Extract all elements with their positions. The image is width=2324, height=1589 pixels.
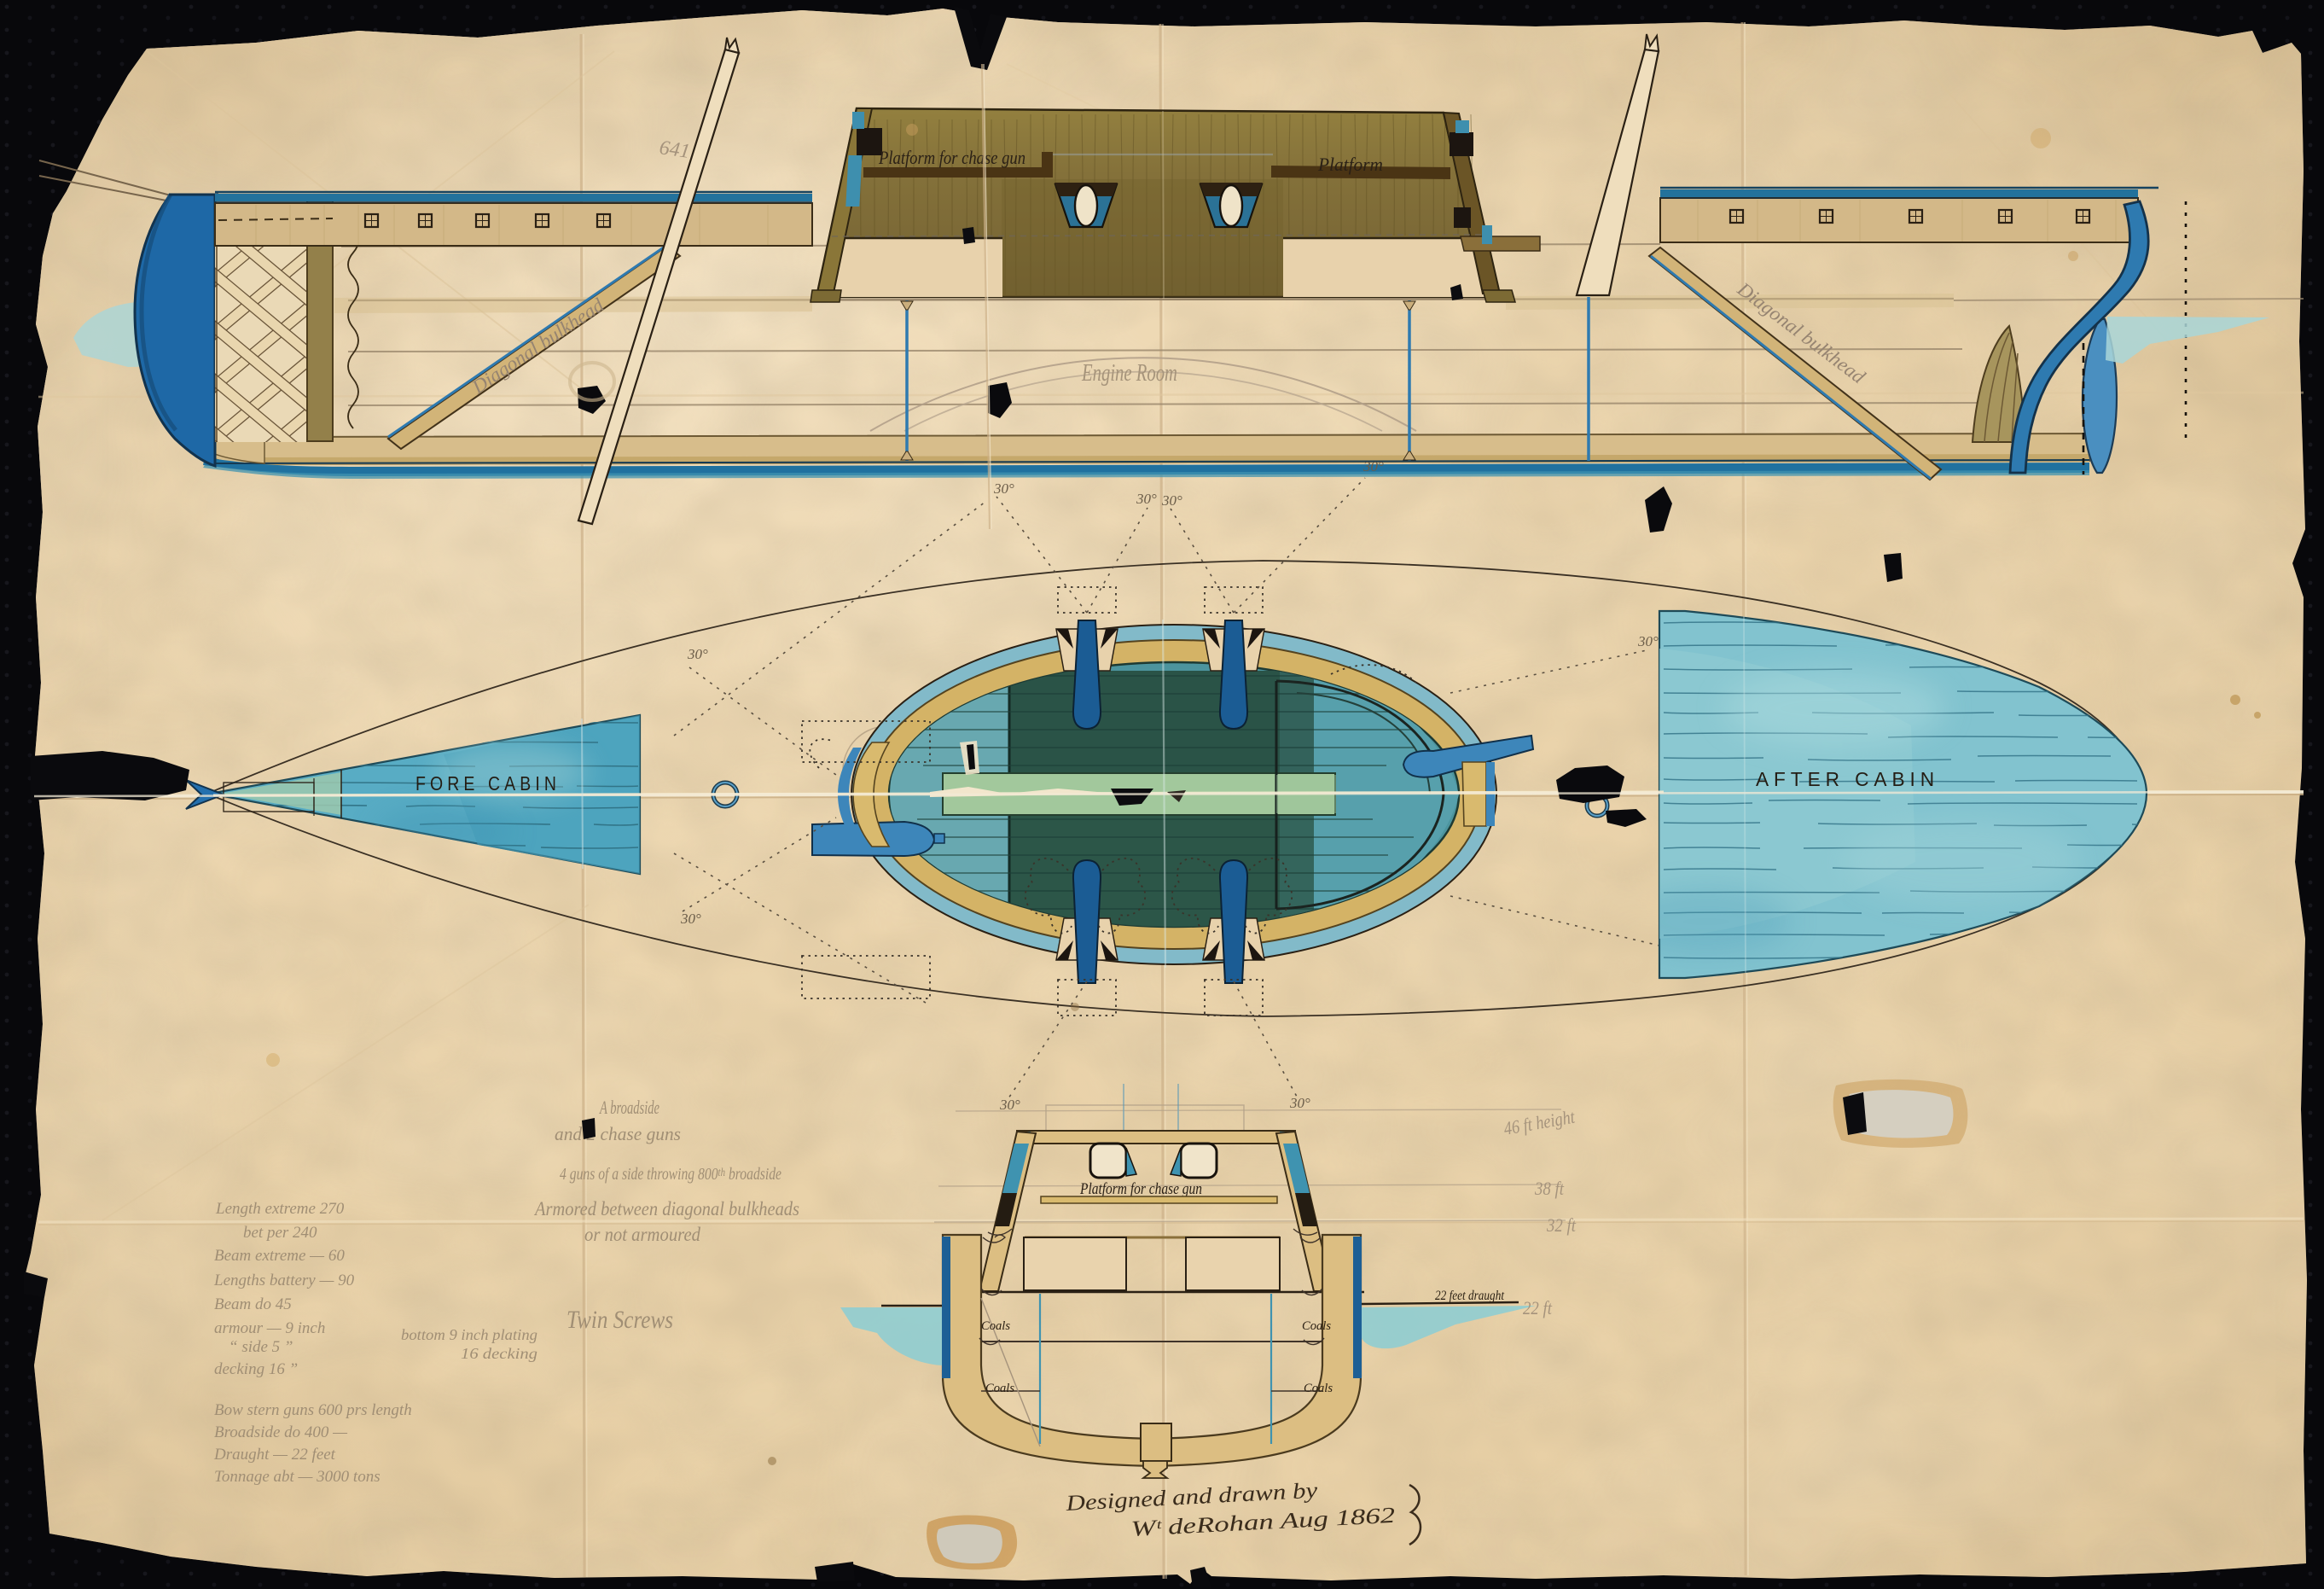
svg-text:Coals: Coals [1302,1319,1331,1333]
svg-text:30°: 30° [993,480,1014,497]
svg-text:4 guns of a side throwing 800t: 4 guns of a side throwing 800th broadsid… [560,1165,781,1184]
svg-text:30°: 30° [1637,633,1659,649]
svg-text:30°: 30° [680,911,701,927]
svg-text:30°: 30° [1362,458,1384,474]
svg-text:16 decking: 16 decking [461,1345,537,1362]
svg-text:Broadside do 400 —: Broadside do 400 — [214,1423,347,1441]
svg-text:Draught — 22 feet: Draught — 22 feet [213,1446,336,1464]
svg-text:AFTER CABIN: AFTER CABIN [1756,768,1939,790]
svg-text:38 ft: 38 ft [1534,1178,1565,1199]
svg-text:Coals: Coals [985,1382,1014,1395]
svg-text:Beam do 45: Beam do 45 [214,1295,292,1313]
svg-text:22 ft: 22 ft [1523,1297,1553,1318]
svg-text:armour — 9 inch: armour — 9 inch [214,1319,325,1337]
svg-text:Twin Screws: Twin Screws [566,1306,673,1334]
svg-text:Beam extreme — 60: Beam extreme — 60 [214,1247,345,1265]
svg-text:30°: 30° [1161,492,1182,509]
svg-text:Engine Room: Engine Room [1081,360,1177,387]
svg-text:FORE CABIN: FORE CABIN [415,772,561,794]
svg-text:32 ft: 32 ft [1546,1214,1577,1236]
svg-text:641: 641 [658,137,691,163]
svg-text:A broadside: A broadside [599,1097,659,1118]
svg-text:22 feet draught: 22 feet draught [1435,1289,1504,1303]
svg-text:Coals: Coals [1304,1382,1333,1395]
svg-text:bet per 240: bet per 240 [243,1224,317,1242]
svg-text:Platform: Platform [1317,154,1383,175]
svg-text:Length extreme 270: Length extreme 270 [215,1200,345,1218]
svg-text:Armored between diagonal bulkh: Armored between diagonal bulkheads [533,1198,799,1219]
svg-text:Tonnage abt — 3000 tons: Tonnage abt — 3000 tons [214,1468,381,1486]
svg-text:bottom 9 inch plating: bottom 9 inch plating [401,1326,537,1343]
svg-text:Platform for chase gun: Platform for chase gun [1079,1180,1202,1198]
svg-text:Coals: Coals [981,1319,1010,1333]
svg-text:Bow stern guns 600 prs leng: Bow stern guns 600 prs length [214,1401,412,1419]
svg-text:“ side 5 ”: “ side 5 ” [229,1338,293,1356]
svg-text:30°: 30° [1136,491,1157,507]
svg-text:Platform for chase gun: Platform for chase gun [878,147,1025,168]
svg-text:decking 16 ”: decking 16 ” [214,1360,298,1378]
svg-text:30°: 30° [1289,1095,1310,1111]
svg-text:Lengths battery — 90: Lengths battery — 90 [213,1272,355,1289]
svg-text:30°: 30° [687,646,708,662]
svg-text:or not armoured: or not armoured [584,1224,700,1245]
svg-text:and 2 chase guns: and 2 chase guns [555,1123,681,1144]
